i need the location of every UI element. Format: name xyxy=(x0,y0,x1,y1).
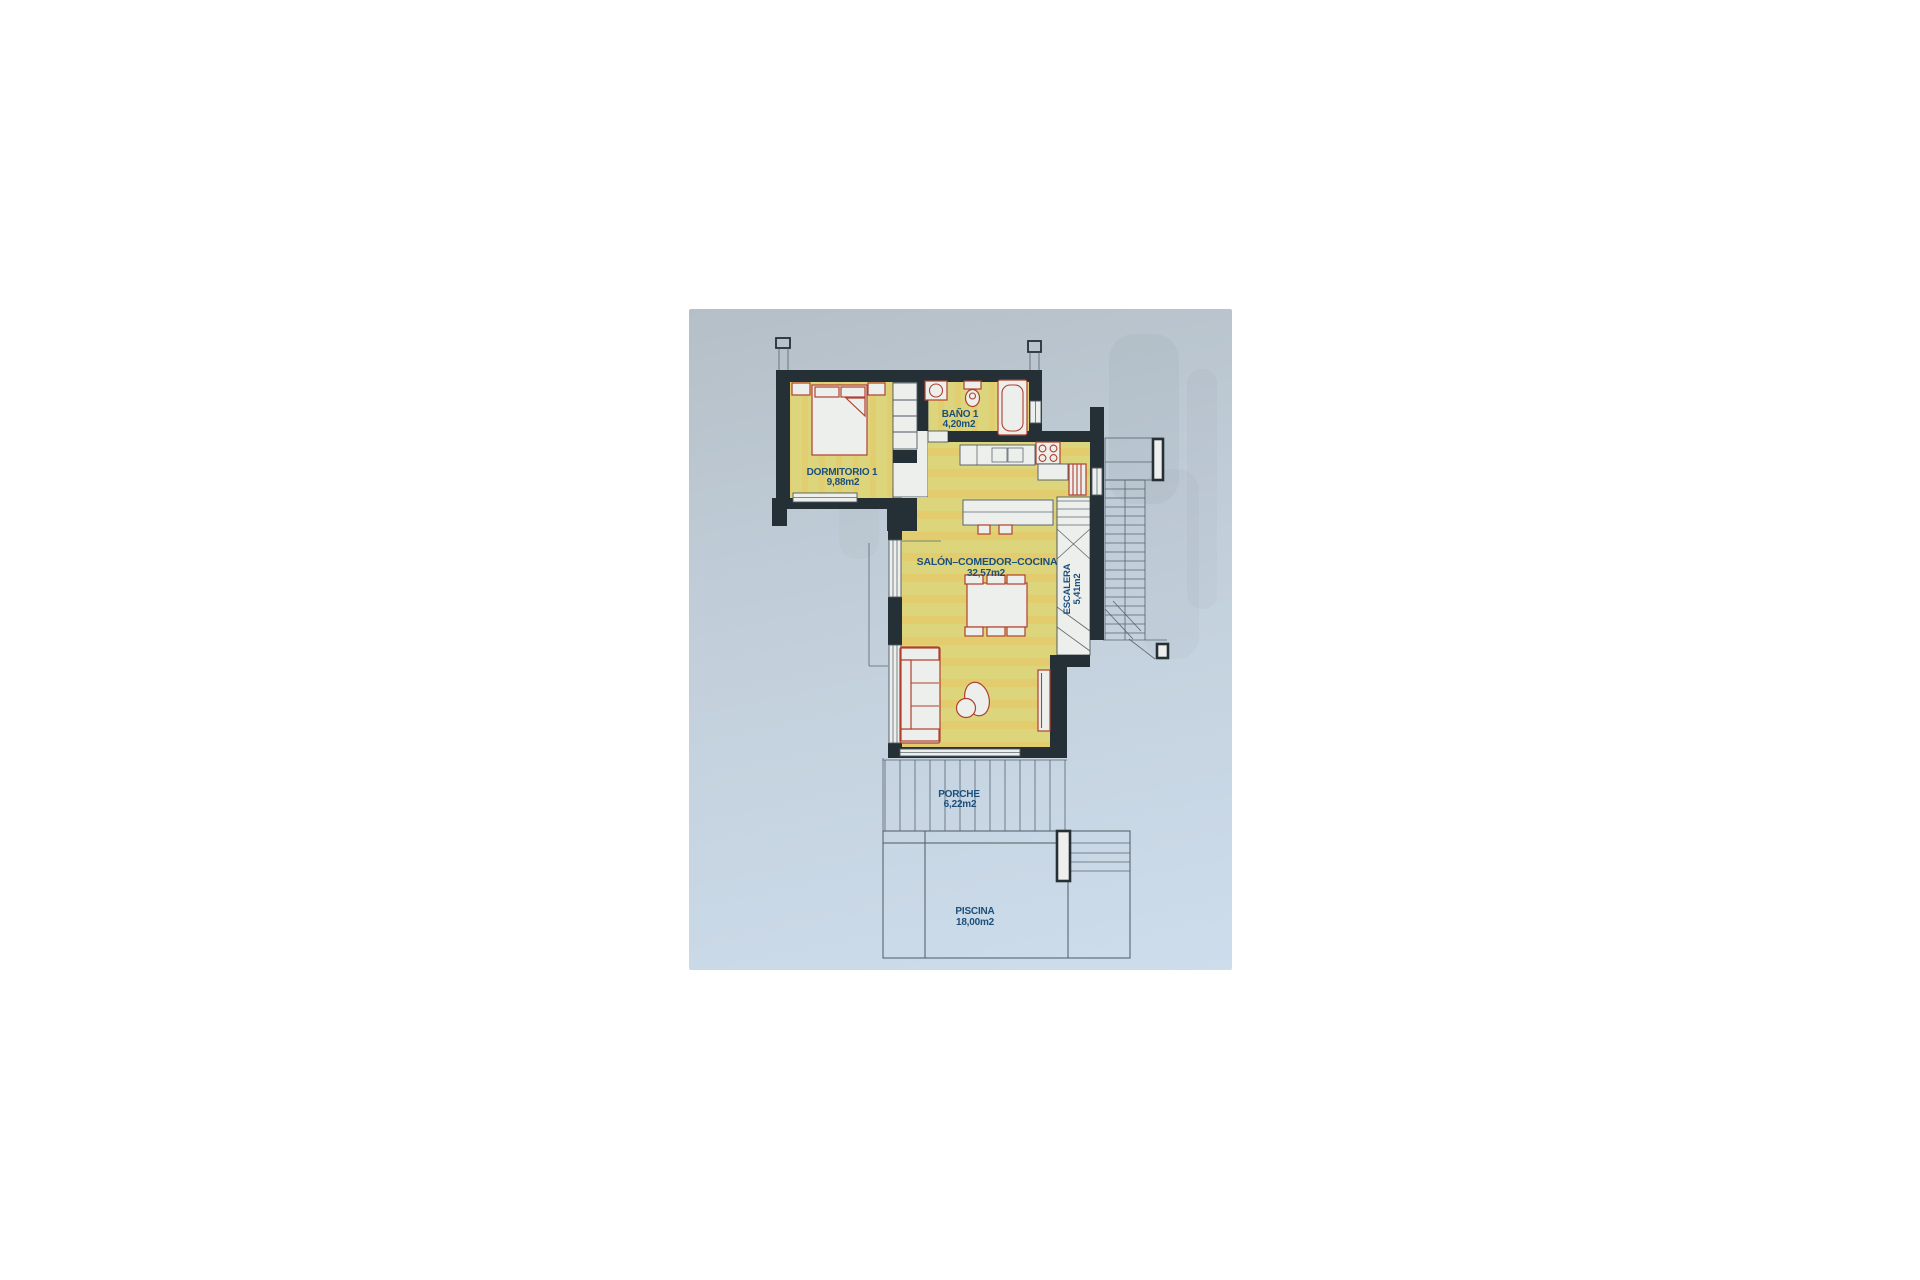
toilet-icon xyxy=(964,381,981,407)
floorplan-photo: DORMITORIO 1 9,88m2 BAÑO 1 4,20m2 SALÓN–… xyxy=(689,309,1232,970)
stool-icon xyxy=(978,525,990,534)
pillar-left xyxy=(776,338,790,348)
closet-stub xyxy=(893,450,917,463)
pillar-right xyxy=(1028,341,1041,352)
chair-icon xyxy=(987,627,1005,636)
label-porche-area: 6,22m2 xyxy=(944,799,977,810)
nightstand-icon xyxy=(868,383,885,395)
kitchen-counter xyxy=(960,445,1035,465)
bathtub-icon xyxy=(998,380,1027,435)
bathroom-door-gap xyxy=(928,431,948,442)
stair-pillar-top xyxy=(1153,439,1163,480)
bath-east-window xyxy=(1030,401,1041,423)
south-wall-stub xyxy=(772,509,787,526)
screenshot-canvas: DORMITORIO 1 9,88m2 BAÑO 1 4,20m2 SALÓN–… xyxy=(0,0,1920,1280)
salon-slider-window xyxy=(900,749,1020,756)
salon-west-window-1 xyxy=(889,540,901,597)
floorplan-drawing: DORMITORIO 1 9,88m2 BAÑO 1 4,20m2 SALÓN–… xyxy=(689,309,1232,970)
chair-icon xyxy=(965,627,983,636)
fridge-icon xyxy=(1069,464,1086,495)
pool-ladder xyxy=(1057,831,1070,881)
chair-icon xyxy=(1007,627,1025,636)
label-escalera-area: 5,41m2 xyxy=(1072,573,1083,604)
kitchen-side-counter xyxy=(1038,464,1068,480)
dormitorio-west-wall xyxy=(776,370,790,504)
salon-west-window-2 xyxy=(889,645,901,743)
stove-icon xyxy=(1036,442,1060,464)
label-salon-name: SALÓN–COMEDOR–COCINA xyxy=(917,555,1058,568)
label-bano-area: 4,20m2 xyxy=(943,419,976,430)
dormitorio-window xyxy=(793,493,857,502)
salon-east-wall xyxy=(1050,655,1067,758)
tv-unit-icon xyxy=(1038,670,1050,731)
stair-pillar-bottom xyxy=(1157,644,1168,658)
pillow-icon xyxy=(841,387,865,397)
closet-icon xyxy=(893,383,917,449)
sofa-icon xyxy=(900,647,940,743)
dining-set xyxy=(965,575,1027,636)
pool-outline xyxy=(883,831,1130,958)
nightstand-icon xyxy=(792,383,810,395)
label-dormitorio-area: 9,88m2 xyxy=(827,477,860,488)
east-wall-window xyxy=(1092,468,1102,495)
label-salon-area: 32,57m2 xyxy=(967,568,1006,579)
stool-icon xyxy=(999,525,1012,534)
east-wall xyxy=(1090,407,1104,640)
label-piscina-name: PISCINA xyxy=(955,906,994,917)
pillow-icon xyxy=(815,387,839,397)
dining-table xyxy=(967,583,1027,627)
label-piscina-area: 18,00m2 xyxy=(956,917,995,928)
chair-icon xyxy=(1007,575,1025,584)
washbasin-icon xyxy=(925,381,947,400)
roof-pillars xyxy=(776,338,1041,370)
